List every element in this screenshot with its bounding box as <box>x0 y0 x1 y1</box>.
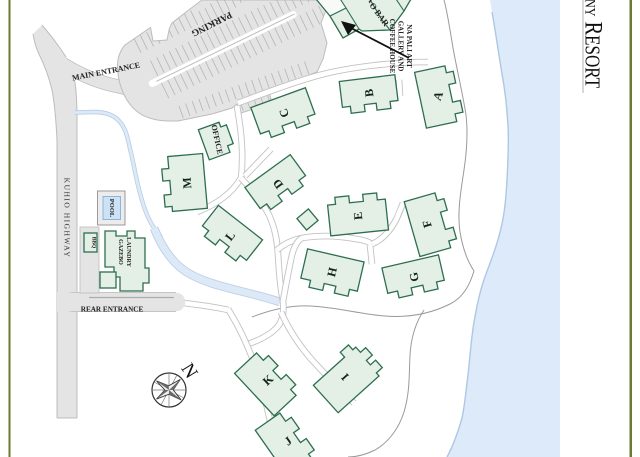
svg-text:E: E <box>351 211 366 220</box>
svg-text:LAUNDRY: LAUNDRY <box>125 237 131 267</box>
svg-text:GAZEBO: GAZEBO <box>117 239 123 265</box>
svg-text:NA PALI ART: NA PALI ART <box>405 24 413 68</box>
svg-text:REAR ENTRANCE: REAR ENTRANCE <box>81 306 144 314</box>
svg-text:POOL: POOL <box>108 199 115 218</box>
svg-text:GALLERY AND: GALLERY AND <box>397 21 405 72</box>
svg-text:BBQ: BBQ <box>91 237 97 249</box>
svg-text:M: M <box>180 177 195 189</box>
svg-text:B: B <box>362 88 377 98</box>
svg-text:KUHIO HIGHWAY: KUHIO HIGHWAY <box>63 178 72 259</box>
svg-text:COFFEE HOUSE: COFFEE HOUSE <box>388 19 396 74</box>
